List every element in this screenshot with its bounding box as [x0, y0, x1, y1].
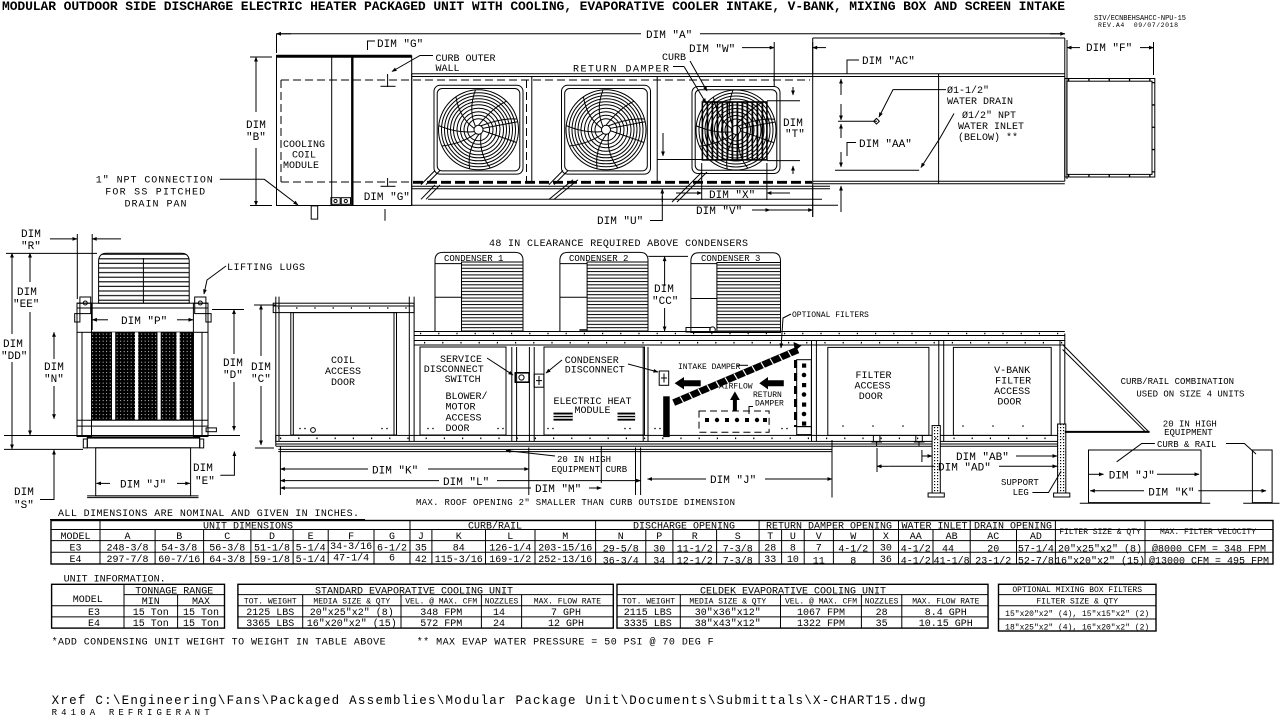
svg-text:FOR SS PITCHED: FOR SS PITCHED: [105, 188, 205, 199]
svg-text:64-3/8: 64-3/8: [209, 554, 245, 566]
svg-text:SWITCH: SWITCH: [445, 375, 481, 386]
svg-text:DIM "L": DIM "L": [443, 477, 489, 489]
svg-text:29-5/8: 29-5/8: [603, 544, 639, 556]
svg-text:297-7/8: 297-7/8: [106, 554, 148, 566]
svg-text:ACCESS: ACCESS: [325, 367, 361, 378]
svg-text:30: 30: [653, 545, 665, 556]
svg-text:34-3/16: 34-3/16: [330, 541, 372, 553]
svg-text:D: D: [269, 532, 275, 543]
svg-text:DIM "AC": DIM "AC": [862, 56, 915, 68]
svg-text:"EE": "EE": [13, 299, 39, 311]
svg-text:C: C: [224, 532, 230, 543]
svg-text:DIM "A": DIM "A": [646, 30, 692, 42]
svg-text:BLOWER/: BLOWER/: [446, 391, 488, 403]
svg-text:16"x20"x2" (15): 16"x20"x2" (15): [307, 618, 397, 630]
svg-text:10: 10: [787, 555, 799, 566]
svg-text:15 Ton: 15 Ton: [133, 608, 169, 619]
svg-text:COOLING: COOLING: [283, 140, 325, 151]
svg-text:DIM "X": DIM "X": [709, 190, 755, 202]
svg-text:X: X: [883, 532, 889, 543]
svg-text:DIM: DIM: [44, 362, 64, 374]
svg-text:DIM "V": DIM "V": [696, 206, 742, 218]
svg-text:COIL: COIL: [331, 356, 355, 367]
svg-text:12-1/2: 12-1/2: [677, 556, 713, 568]
svg-text:59-1/8: 59-1/8: [254, 554, 290, 566]
svg-text:1" NPT CONNECTION: 1" NPT CONNECTION: [96, 174, 213, 186]
svg-text:AC: AC: [987, 532, 999, 543]
svg-text:EQUIPMENT: EQUIPMENT: [1164, 428, 1213, 438]
svg-text:28: 28: [764, 544, 776, 555]
svg-text:"D": "D": [223, 370, 243, 382]
svg-text:CURB/RAIL: CURB/RAIL: [468, 521, 522, 533]
svg-text:34: 34: [653, 557, 665, 568]
svg-text:DIM "K": DIM "K": [372, 466, 418, 478]
svg-text:572 FPM: 572 FPM: [420, 619, 462, 630]
svg-text:R410A REFRIGERANT: R410A REFRIGERANT: [52, 708, 211, 718]
svg-text:DOOR: DOOR: [997, 398, 1021, 409]
svg-text:Xref C:\Engineering\Fans\Packa: Xref C:\Engineering\Fans\Packaged Assemb…: [52, 694, 926, 708]
svg-text:** MAX EVAP WATER PRESSURE = 5: ** MAX EVAP WATER PRESSURE = 50 PSI @ 70…: [417, 637, 714, 649]
svg-text:TOT. WEIGHT: TOT. WEIGHT: [244, 598, 297, 607]
svg-text:8.4 GPH: 8.4 GPH: [925, 608, 967, 619]
svg-text:169-1/2: 169-1/2: [489, 554, 531, 566]
svg-text:DIM: DIM: [246, 120, 266, 132]
svg-text:20"x25"x2" (8): 20"x25"x2" (8): [310, 607, 394, 619]
svg-text:E4: E4: [88, 619, 100, 630]
svg-text:UNIT DIMENSIONS: UNIT DIMENSIONS: [203, 522, 293, 533]
svg-text:3365 LBS: 3365 LBS: [246, 619, 294, 630]
svg-text:MODULAR OUTDOOR SIDE DISCHARGE: MODULAR OUTDOOR SIDE DISCHARGE ELECTRIC …: [2, 0, 1065, 14]
svg-text:"CC": "CC": [652, 296, 678, 308]
svg-text:115-3/16: 115-3/16: [435, 554, 483, 566]
svg-text:(BELOW) **: (BELOW) **: [958, 132, 1018, 144]
svg-text:TONNAGE RANGE: TONNAGE RANGE: [135, 587, 213, 598]
svg-text:G: G: [389, 532, 395, 543]
svg-text:WATER INLET: WATER INLET: [901, 522, 967, 533]
svg-text:5-1/4: 5-1/4: [296, 554, 326, 566]
svg-text:CONDENSER 1: CONDENSER 1: [444, 254, 503, 264]
svg-text:V: V: [816, 532, 822, 543]
svg-text:E3: E3: [69, 544, 81, 555]
svg-text:84: 84: [453, 544, 465, 555]
svg-text:CELDEK EVAPORATIVE COOLING UNI: CELDEK EVAPORATIVE COOLING UNIT: [700, 587, 886, 598]
svg-text:DRAIN OPENING: DRAIN OPENING: [974, 522, 1052, 533]
svg-text:DOOR: DOOR: [331, 378, 355, 389]
svg-text:WALL: WALL: [436, 64, 460, 75]
svg-text:MAX: MAX: [192, 597, 210, 608]
svg-text:AA: AA: [910, 532, 922, 543]
svg-text:DIM "W": DIM "W": [689, 44, 735, 56]
svg-text:30"x36"x12": 30"x36"x12": [695, 607, 761, 619]
svg-text:30: 30: [880, 544, 892, 555]
svg-text:CONDENSER 3: CONDENSER 3: [701, 254, 760, 264]
svg-text:15 Ton: 15 Ton: [133, 619, 169, 630]
svg-text:23-1/2: 23-1/2: [975, 556, 1011, 568]
svg-text:MIN: MIN: [142, 597, 160, 608]
svg-text:WATER INLET: WATER INLET: [958, 122, 1024, 133]
svg-text:DISCHARGE OPENING: DISCHARGE OPENING: [633, 522, 735, 533]
svg-text:E3: E3: [88, 608, 100, 619]
svg-text:DIM: DIM: [14, 487, 34, 499]
svg-text:MODULE: MODULE: [575, 406, 611, 417]
svg-text:AB: AB: [946, 532, 958, 543]
svg-text:35: 35: [876, 619, 888, 630]
svg-text:15 Ton: 15 Ton: [183, 608, 219, 619]
svg-text:STANDARD EVAPORATIVE COOLING U: STANDARD EVAPORATIVE COOLING UNIT: [315, 587, 513, 598]
svg-text:*ADD CONDENSING UNIT WEIGHT TO: *ADD CONDENSING UNIT WEIGHT TO WEIGHT IN…: [52, 637, 386, 649]
svg-text:CURB & RAIL: CURB & RAIL: [1157, 440, 1216, 450]
svg-text:"E": "E": [195, 476, 215, 488]
svg-text:28: 28: [876, 608, 888, 619]
svg-text:"S": "S": [14, 500, 34, 512]
svg-text:VEL. @ MAX. CFM: VEL. @ MAX. CFM: [785, 598, 857, 607]
svg-text:11-1/2: 11-1/2: [677, 544, 713, 556]
svg-text:MEDIA SIZE & QTY: MEDIA SIZE & QTY: [689, 598, 766, 607]
svg-text:4-1/2: 4-1/2: [901, 544, 931, 556]
svg-text:MEDIA SIZE & QTY: MEDIA SIZE & QTY: [313, 598, 390, 607]
svg-text:DIM "G": DIM "G": [377, 39, 423, 51]
svg-text:DIM "K": DIM "K": [1148, 487, 1194, 499]
svg-text:DIM "J": DIM "J": [710, 475, 756, 487]
svg-text:DIM: DIM: [21, 229, 41, 241]
svg-text:48 IN CLEARANCE REQUIRED ABOVE: 48 IN CLEARANCE REQUIRED ABOVE CONDENSER…: [489, 239, 748, 250]
svg-text:6: 6: [389, 554, 395, 565]
svg-text:DIM "M": DIM "M": [535, 484, 581, 496]
svg-text:B: B: [176, 532, 182, 543]
svg-text:CURB: CURB: [662, 53, 686, 64]
svg-text:ACCESS: ACCESS: [994, 387, 1030, 398]
svg-text:MODEL: MODEL: [73, 595, 103, 606]
svg-text:14: 14: [493, 608, 505, 619]
svg-text:4-1/2: 4-1/2: [838, 544, 868, 556]
svg-text:COIL: COIL: [292, 151, 316, 162]
svg-text:L: L: [507, 532, 513, 543]
svg-text:42: 42: [415, 555, 427, 566]
svg-text:LEG: LEG: [1013, 488, 1029, 498]
svg-text:2115 LBS: 2115 LBS: [624, 608, 672, 619]
svg-text:38"x43"x12": 38"x43"x12": [695, 618, 761, 630]
svg-text:MODEL: MODEL: [60, 532, 90, 543]
svg-text:"R": "R": [21, 241, 41, 253]
svg-text:P: P: [656, 532, 662, 543]
svg-text:57-1/4: 57-1/4: [1018, 544, 1054, 556]
svg-text:"DD": "DD": [1, 351, 27, 363]
svg-text:DAMPER: DAMPER: [755, 400, 784, 409]
svg-text:348 FPM: 348 FPM: [420, 608, 462, 619]
svg-text:T: T: [767, 532, 773, 543]
svg-text:8: 8: [790, 544, 796, 555]
svg-text:U: U: [790, 532, 796, 543]
svg-text:16"x20"x2" (15): 16"x20"x2" (15): [1055, 556, 1145, 568]
svg-text:A: A: [124, 532, 130, 543]
svg-text:MAX. FILTER VELOCITY: MAX. FILTER VELOCITY: [1160, 528, 1256, 537]
svg-text:DIM: DIM: [17, 287, 37, 299]
svg-text:@8000 CFM = 348 FPM: @8000 CFM = 348 FPM: [1152, 544, 1266, 556]
svg-text:MODULE: MODULE: [283, 161, 319, 172]
svg-text:56-3/8: 56-3/8: [209, 543, 245, 555]
svg-text:K: K: [456, 532, 462, 543]
svg-text:USED ON SIZE 4 UNITS: USED ON SIZE 4 UNITS: [1136, 390, 1244, 400]
svg-text:DIM: DIM: [3, 339, 23, 351]
svg-text:ACCESS: ACCESS: [446, 414, 482, 425]
svg-text:REV.A4 09/07/2018: REV.A4 09/07/2018: [1098, 22, 1178, 29]
svg-text:35: 35: [415, 544, 427, 555]
svg-text:FILTER SIZE & QTY: FILTER SIZE & QTY: [1059, 528, 1141, 537]
svg-text:DIM: DIM: [654, 284, 674, 296]
svg-text:1067 FPM: 1067 FPM: [797, 608, 845, 619]
svg-text:248-3/8: 248-3/8: [106, 543, 148, 555]
svg-text:126-1/4: 126-1/4: [489, 543, 531, 555]
svg-text:15"x20"x2" (4), 15"x15"x2" (2): 15"x20"x2" (4), 15"x15"x2" (2): [1005, 610, 1149, 619]
svg-text:M: M: [562, 532, 568, 543]
svg-text:12 GPH: 12 GPH: [548, 619, 584, 630]
svg-text:DIM "AA": DIM "AA": [859, 139, 912, 151]
svg-text:CONDENSER 2: CONDENSER 2: [569, 254, 628, 264]
svg-text:36-3/4: 36-3/4: [603, 556, 639, 568]
svg-text:J: J: [418, 532, 424, 543]
svg-text:DIM "J": DIM "J": [120, 480, 166, 492]
svg-text:NOZZLES: NOZZLES: [485, 598, 519, 607]
svg-text:7-3/8: 7-3/8: [723, 544, 753, 556]
svg-text:DIM: DIM: [251, 362, 271, 374]
svg-text:DIM: DIM: [223, 358, 243, 370]
svg-text:OPTIONAL FILTERS: OPTIONAL FILTERS: [792, 311, 869, 320]
svg-text:WATER DRAIN: WATER DRAIN: [947, 97, 1013, 108]
svg-text:LIFTING LUGS: LIFTING LUGS: [227, 263, 305, 274]
svg-text:INTAKE DAMPER: INTAKE DAMPER: [678, 363, 741, 372]
svg-text:41-1/8: 41-1/8: [934, 556, 970, 568]
svg-text:RETURN DAMPER OPENING: RETURN DAMPER OPENING: [766, 522, 892, 533]
svg-text:5-1/4: 5-1/4: [296, 543, 326, 555]
svg-text:@13000 CFM = 495 FPM: @13000 CFM = 495 FPM: [1149, 556, 1269, 568]
svg-text:"T": "T": [785, 129, 805, 141]
svg-text:47-1/4: 47-1/4: [333, 553, 369, 565]
svg-text:DIM "F": DIM "F": [1086, 43, 1132, 55]
svg-text:DOOR: DOOR: [859, 392, 883, 403]
svg-text:20"x25"x2" (8): 20"x25"x2" (8): [1058, 544, 1142, 556]
svg-text:R: R: [692, 532, 698, 543]
svg-text:60-7/16: 60-7/16: [158, 554, 200, 566]
svg-text:11: 11: [813, 557, 825, 568]
svg-text:51-1/8: 51-1/8: [254, 543, 290, 555]
svg-text:"B": "B": [246, 132, 266, 144]
svg-text:N: N: [618, 532, 624, 543]
svg-text:DIM "AD": DIM "AD": [938, 463, 991, 475]
svg-text:36: 36: [880, 555, 892, 566]
svg-text:AD: AD: [1030, 532, 1042, 543]
svg-text:54-3/8: 54-3/8: [161, 543, 197, 555]
svg-text:S: S: [735, 532, 741, 543]
svg-text:10.15 GPH: 10.15 GPH: [919, 619, 973, 630]
svg-text:1322 FPM: 1322 FPM: [797, 619, 845, 630]
svg-text:2125 LBS: 2125 LBS: [246, 608, 294, 619]
svg-text:AIRFLOW: AIRFLOW: [719, 383, 753, 392]
svg-text:MAX. FLOW RATE: MAX. FLOW RATE: [534, 598, 601, 607]
svg-text:18"x25"x2" (4), 16"x20"x2" (2): 18"x25"x2" (4), 16"x20"x2" (2): [1005, 624, 1149, 633]
svg-text:15 Ton: 15 Ton: [183, 619, 219, 630]
svg-text:203-15/16: 203-15/16: [538, 543, 592, 555]
svg-text:4-1/2: 4-1/2: [901, 556, 931, 568]
svg-text:DIM "P": DIM "P": [121, 316, 167, 328]
svg-text:DIM "G": DIM "G": [364, 192, 410, 204]
svg-text:E4: E4: [69, 555, 81, 566]
svg-text:33: 33: [764, 555, 776, 566]
svg-text:EQUIPMENT CURB: EQUIPMENT CURB: [552, 465, 628, 475]
svg-text:SUPPORT: SUPPORT: [1001, 478, 1039, 488]
svg-text:"C": "C": [251, 374, 271, 386]
svg-text:V-BANK: V-BANK: [994, 366, 1030, 377]
svg-text:Ø1/2" NPT: Ø1/2" NPT: [962, 110, 1016, 122]
svg-text:ACCESS: ACCESS: [855, 382, 891, 393]
svg-text:44: 44: [942, 545, 954, 556]
svg-text:FILTER: FILTER: [856, 371, 892, 382]
svg-text:20: 20: [987, 545, 999, 556]
svg-text:7-3/8: 7-3/8: [723, 556, 753, 568]
svg-text:VEL. @ MAX. CFM: VEL. @ MAX. CFM: [405, 598, 477, 607]
svg-text:DIM: DIM: [193, 463, 213, 475]
svg-text:20 IN HIGH: 20 IN HIGH: [557, 455, 611, 465]
svg-text:DISCONNECT: DISCONNECT: [565, 366, 625, 377]
svg-text:52-7/8: 52-7/8: [1018, 556, 1054, 568]
svg-text:W: W: [850, 532, 856, 543]
svg-text:DRAIN PAN: DRAIN PAN: [125, 199, 187, 210]
svg-text:NOZZLES: NOZZLES: [865, 598, 899, 607]
svg-text:CURB/RAIL COMBINATION: CURB/RAIL COMBINATION: [1121, 377, 1234, 387]
svg-text:3335 LBS: 3335 LBS: [624, 619, 672, 630]
svg-text:DOOR: DOOR: [446, 424, 470, 435]
svg-text:Ø1-1/2": Ø1-1/2": [947, 85, 989, 97]
svg-text:RETURN DAMPER: RETURN DAMPER: [573, 65, 669, 76]
svg-text:DIM "U": DIM "U": [597, 216, 643, 228]
svg-text:MAX. FLOW RATE: MAX. FLOW RATE: [912, 598, 979, 607]
svg-text:DIM "J": DIM "J": [1109, 471, 1155, 483]
svg-text:7: 7: [816, 544, 822, 555]
svg-text:252-13/16: 252-13/16: [538, 554, 592, 566]
svg-text:TOT. WEIGHT: TOT. WEIGHT: [622, 598, 675, 607]
svg-text:FILTER: FILTER: [995, 377, 1031, 388]
svg-text:MAX. ROOF OPENING 2" SMALLER T: MAX. ROOF OPENING 2" SMALLER THAN CURB O…: [416, 498, 735, 508]
svg-text:24: 24: [493, 619, 505, 630]
svg-text:FILTER SIZE & QTY: FILTER SIZE & QTY: [1036, 598, 1118, 607]
svg-text:7 GPH: 7 GPH: [551, 608, 581, 619]
svg-text:"N": "N": [44, 374, 64, 386]
svg-text:MOTOR: MOTOR: [446, 403, 476, 414]
svg-text:8: 8: [850, 557, 856, 568]
svg-text:ALL DIMENSIONS ARE NOMINAL AND: ALL DIMENSIONS ARE NOMINAL AND GIVEN IN …: [58, 509, 359, 520]
svg-text:E: E: [308, 532, 314, 543]
svg-text:OPTIONAL MIXING BOX FILTERS: OPTIONAL MIXING BOX FILTERS: [1012, 586, 1142, 595]
